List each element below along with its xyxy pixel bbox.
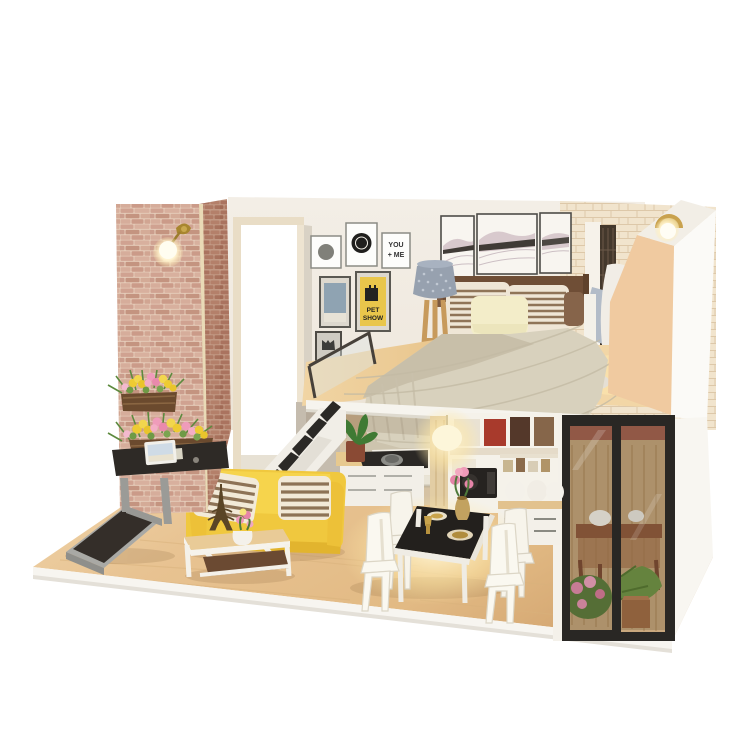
svg-text:YOU: YOU (388, 242, 403, 249)
svg-text:+ ME: + ME (388, 252, 405, 259)
svg-text:SHOW: SHOW (363, 315, 384, 322)
svg-text:PET: PET (367, 307, 380, 314)
